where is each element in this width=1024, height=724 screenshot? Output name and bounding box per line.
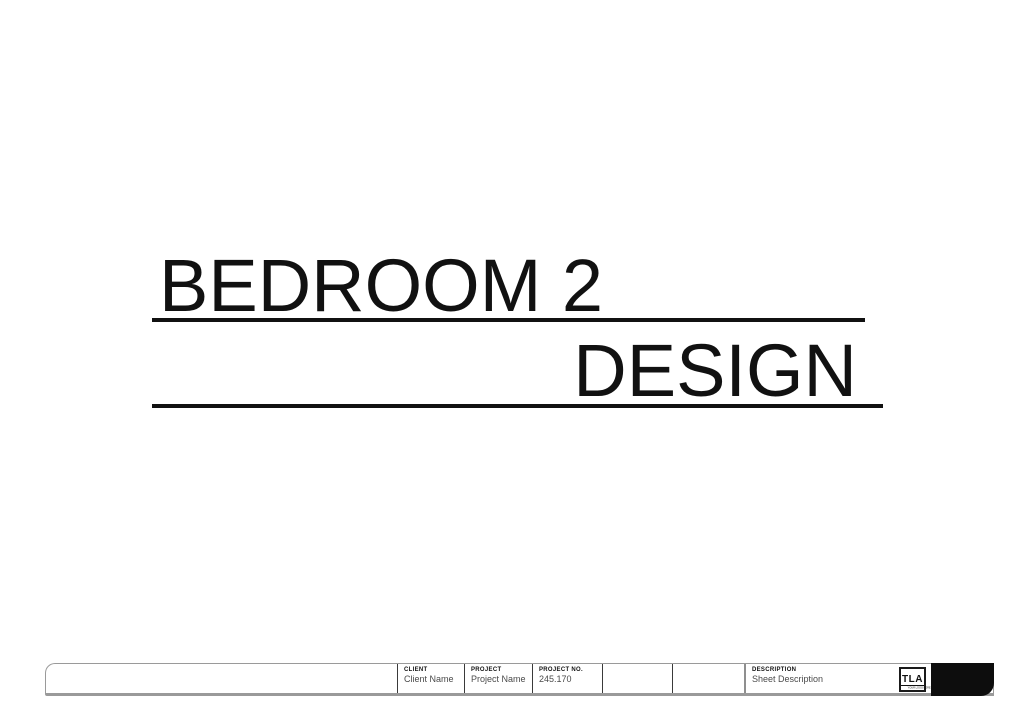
title-block-endcap — [931, 663, 994, 696]
sheet-title-line2: DESIGN — [573, 334, 857, 408]
field-empty-1 — [602, 664, 672, 693]
title-underline-1 — [152, 318, 865, 322]
field-project: PROJECT Project Name — [464, 664, 532, 693]
sheet-title-line1: BEDROOM 2 — [159, 249, 603, 323]
tla-logo-text: TLA — [901, 674, 924, 686]
project-value: Project Name — [471, 674, 532, 685]
title-underline-2 — [152, 404, 883, 408]
field-client: CLIENT Client Name — [397, 664, 464, 693]
title-block-spacer — [46, 664, 397, 693]
tla-logo: TLA YOUR LOGO HERE — [899, 667, 926, 692]
description-label: DESCRIPTION — [752, 667, 899, 674]
tla-logo-tagline: YOUR LOGO HERE — [908, 687, 918, 689]
project-no-label: PROJECT NO. — [539, 667, 602, 674]
field-project-no: PROJECT NO. 245.170 — [532, 664, 602, 693]
description-value: Sheet Description — [752, 674, 899, 685]
project-label: PROJECT — [471, 667, 532, 674]
project-no-value: 245.170 — [539, 674, 602, 685]
client-label: CLIENT — [404, 667, 464, 674]
client-value: Client Name — [404, 674, 464, 685]
title-block: CLIENT Client Name PROJECT Project Name … — [45, 663, 994, 696]
field-empty-2 — [672, 664, 744, 693]
drawing-sheet: BEDROOM 2 DESIGN CLIENT Client Name PROJ… — [0, 0, 1024, 724]
field-description: DESCRIPTION Sheet Description — [744, 664, 899, 693]
